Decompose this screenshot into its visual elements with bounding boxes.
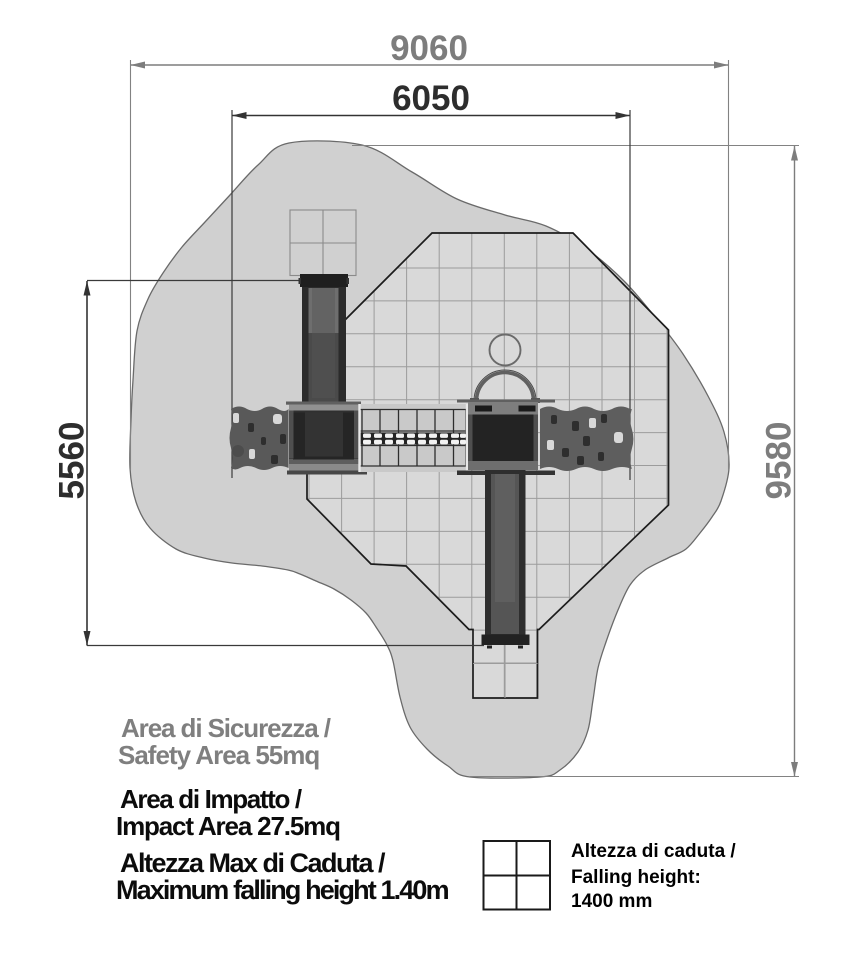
svg-text:Impact Area 27.5mq: Impact Area 27.5mq: [116, 811, 340, 841]
svg-text:Safety Area 55mq: Safety Area 55mq: [118, 740, 319, 770]
svg-text:Altezza di caduta /: Altezza di caduta /: [571, 841, 736, 862]
svg-text:1400 mm: 1400 mm: [571, 891, 652, 912]
svg-text:Maximum falling height 1.40m: Maximum falling height 1.40m: [116, 875, 449, 905]
svg-text:Altezza Max di Caduta /: Altezza Max di Caduta /: [120, 848, 386, 878]
svg-text:Area di Sicurezza /: Area di Sicurezza /: [121, 713, 331, 743]
svg-text:9580: 9580: [760, 422, 799, 500]
svg-text:Area di Impatto /: Area di Impatto /: [120, 784, 302, 814]
svg-text:9060: 9060: [390, 29, 468, 68]
svg-text:5560: 5560: [53, 422, 92, 500]
svg-text:6050: 6050: [392, 79, 470, 118]
svg-text:Falling height:: Falling height:: [571, 867, 701, 888]
